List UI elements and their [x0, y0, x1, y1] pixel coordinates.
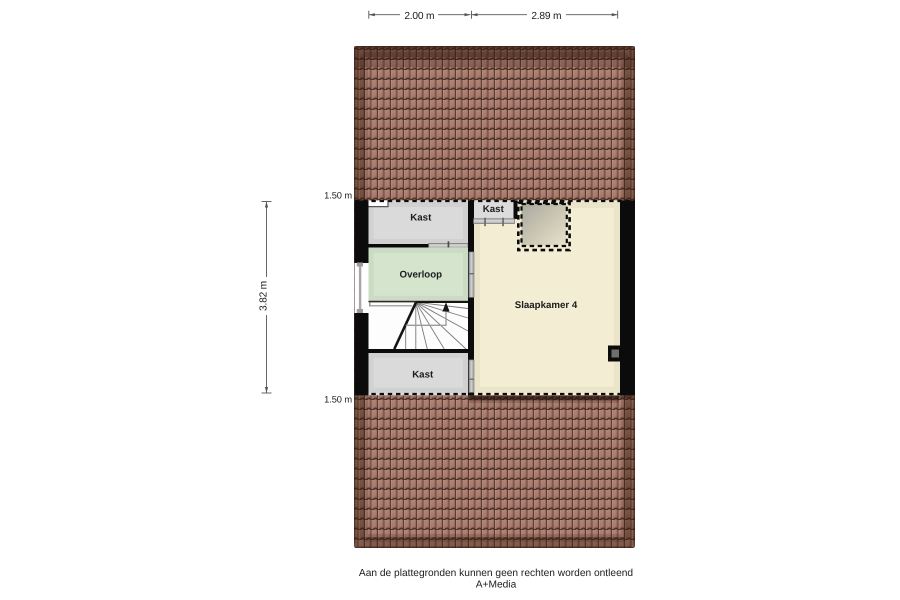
- svg-text:Kast: Kast: [412, 370, 434, 381]
- svg-text:1.50 m: 1.50 m: [324, 191, 352, 201]
- svg-text:Kast: Kast: [410, 212, 432, 223]
- svg-text:1.50 m: 1.50 m: [324, 395, 352, 405]
- svg-text:3.82 m: 3.82 m: [259, 281, 270, 311]
- svg-text:2.89 m: 2.89 m: [531, 11, 561, 22]
- svg-text:Slaapkamer 4: Slaapkamer 4: [515, 300, 578, 311]
- svg-text:A+Media: A+Media: [476, 580, 517, 591]
- svg-text:Overloop: Overloop: [400, 270, 443, 281]
- svg-text:2.00 m: 2.00 m: [404, 11, 434, 22]
- svg-text:Kast: Kast: [483, 204, 505, 215]
- svg-text:Aan de plattegronden kunnen ge: Aan de plattegronden kunnen geen rechten…: [359, 568, 633, 579]
